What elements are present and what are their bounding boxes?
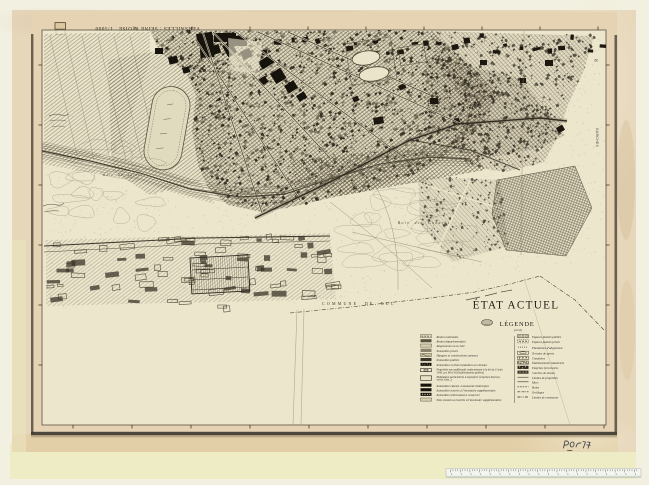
svg-text:Limites de propriétés: Limites de propriétés	[531, 376, 559, 380]
svg-text:Haies: Haies	[531, 385, 540, 389]
svg-text:Hangars et constructions annex: Hangars et constructions annexes	[436, 354, 479, 358]
svg-text:32: 32	[594, 58, 598, 62]
svg-text:Emprises ferroviaires: Emprises ferroviaires	[531, 366, 559, 370]
svg-text:GARCHES: GARCHES	[595, 128, 599, 147]
svg-text:Cimetières: Cimetières	[532, 357, 546, 361]
svg-text:Immeubles publics: Immeubles publics	[436, 358, 461, 362]
svg-text:(extrait): (extrait)	[514, 329, 522, 332]
svg-text:ÉTAT ACTUEL: ÉTAT ACTUEL	[473, 300, 560, 312]
svg-text:Murs: Murs	[531, 380, 539, 384]
svg-text:Plantations d'alignement: Plantations d'alignement	[531, 346, 563, 350]
svg-text:Bois de Satory: Bois de Satory	[103, 173, 144, 177]
svg-text:Établissements industriels: Établissements industriels	[531, 360, 565, 365]
svg-text:voirie, îlots...): voirie, îlots...)	[437, 379, 453, 382]
svg-text:Treillages: Treillages	[532, 390, 545, 394]
svg-text:Bois des Gonards: Bois des Gonards	[398, 221, 450, 225]
svg-text:Courbes de niveau: Courbes de niveau	[532, 371, 555, 375]
svg-text:Immeubles intéressants à conse: Immeubles intéressants à conserver	[436, 393, 481, 397]
svg-text:Espaces plantés privés: Espaces plantés privés	[531, 340, 561, 344]
svg-text:Terrains de sports: Terrains de sports	[532, 351, 555, 355]
svg-text:1943, art. 80 et 81 (établisse: 1943, art. 80 et 81 (établissements publ…	[437, 372, 485, 375]
svg-text:Immeubles privés: Immeubles privés	[436, 349, 459, 353]
svg-text:VERSAILLES : SEINE & OISE 1/: VERSAILLES : SEINE & OISE 1/5000	[95, 25, 200, 31]
svg-text:COMMUNE DE BUC: COMMUNE DE BUC	[322, 301, 396, 306]
svg-text:Routes départementales: Routes départementales	[436, 339, 467, 343]
svg-text:LÉGENDE: LÉGENDE	[500, 320, 535, 328]
svg-text:Immeubles ou îlots insalubres: Immeubles ou îlots insalubres ou vétuste…	[436, 363, 488, 367]
svg-text:Immeubles inscrits à l'inventa: Immeubles inscrits à l'inventaire supplé…	[436, 388, 497, 392]
svg-text:Espaces plantés publics: Espaces plantés publics	[531, 335, 562, 339]
svg-text:Limites de communes: Limites de communes	[531, 396, 559, 400]
svg-text:Alignements ou à créer: Alignements ou à créer	[436, 344, 466, 348]
svg-text:Routes nationales: Routes nationales	[436, 335, 460, 339]
svg-text:Sites classés ou inscrits à l': Sites classés ou inscrits à l'inventaire…	[437, 398, 503, 402]
